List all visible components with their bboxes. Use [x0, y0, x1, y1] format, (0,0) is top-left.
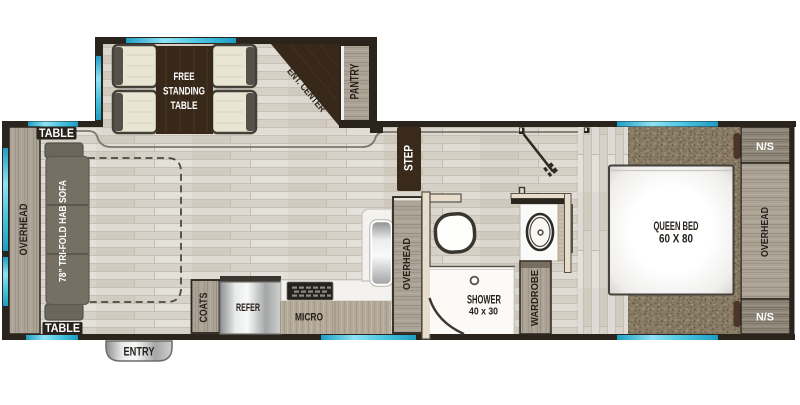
svg-text:REFER: REFER	[236, 302, 260, 314]
svg-text:MICRO: MICRO	[295, 312, 323, 324]
svg-text:N/S: N/S	[756, 141, 774, 153]
svg-text:78” TRI-FOLD HAB SOFA: 78” TRI-FOLD HAB SOFA	[57, 180, 69, 282]
svg-text:40 x 30: 40 x 30	[469, 306, 498, 318]
svg-text:TABLE: TABLE	[171, 100, 198, 112]
svg-text:TABLE: TABLE	[45, 321, 80, 335]
svg-text:N/S: N/S	[756, 312, 774, 324]
svg-text:OVERHEAD: OVERHEAD	[401, 238, 413, 290]
svg-text:OVERHEAD: OVERHEAD	[759, 207, 771, 257]
svg-text:ENTRY: ENTRY	[124, 347, 155, 359]
svg-text:OVERHEAD: OVERHEAD	[18, 203, 30, 255]
svg-text:STEP: STEP	[404, 145, 416, 171]
svg-text:COATS: COATS	[198, 293, 210, 323]
svg-text:STANDING: STANDING	[163, 86, 205, 98]
svg-text:60 X 80: 60 X 80	[659, 234, 693, 246]
svg-text:WARDROBE: WARDROBE	[529, 270, 541, 326]
svg-text:TABLE: TABLE	[39, 126, 74, 140]
svg-text:QUEEN BED: QUEEN BED	[654, 221, 699, 233]
svg-text:FREE: FREE	[174, 71, 195, 83]
svg-text:PANTRY: PANTRY	[350, 63, 362, 99]
